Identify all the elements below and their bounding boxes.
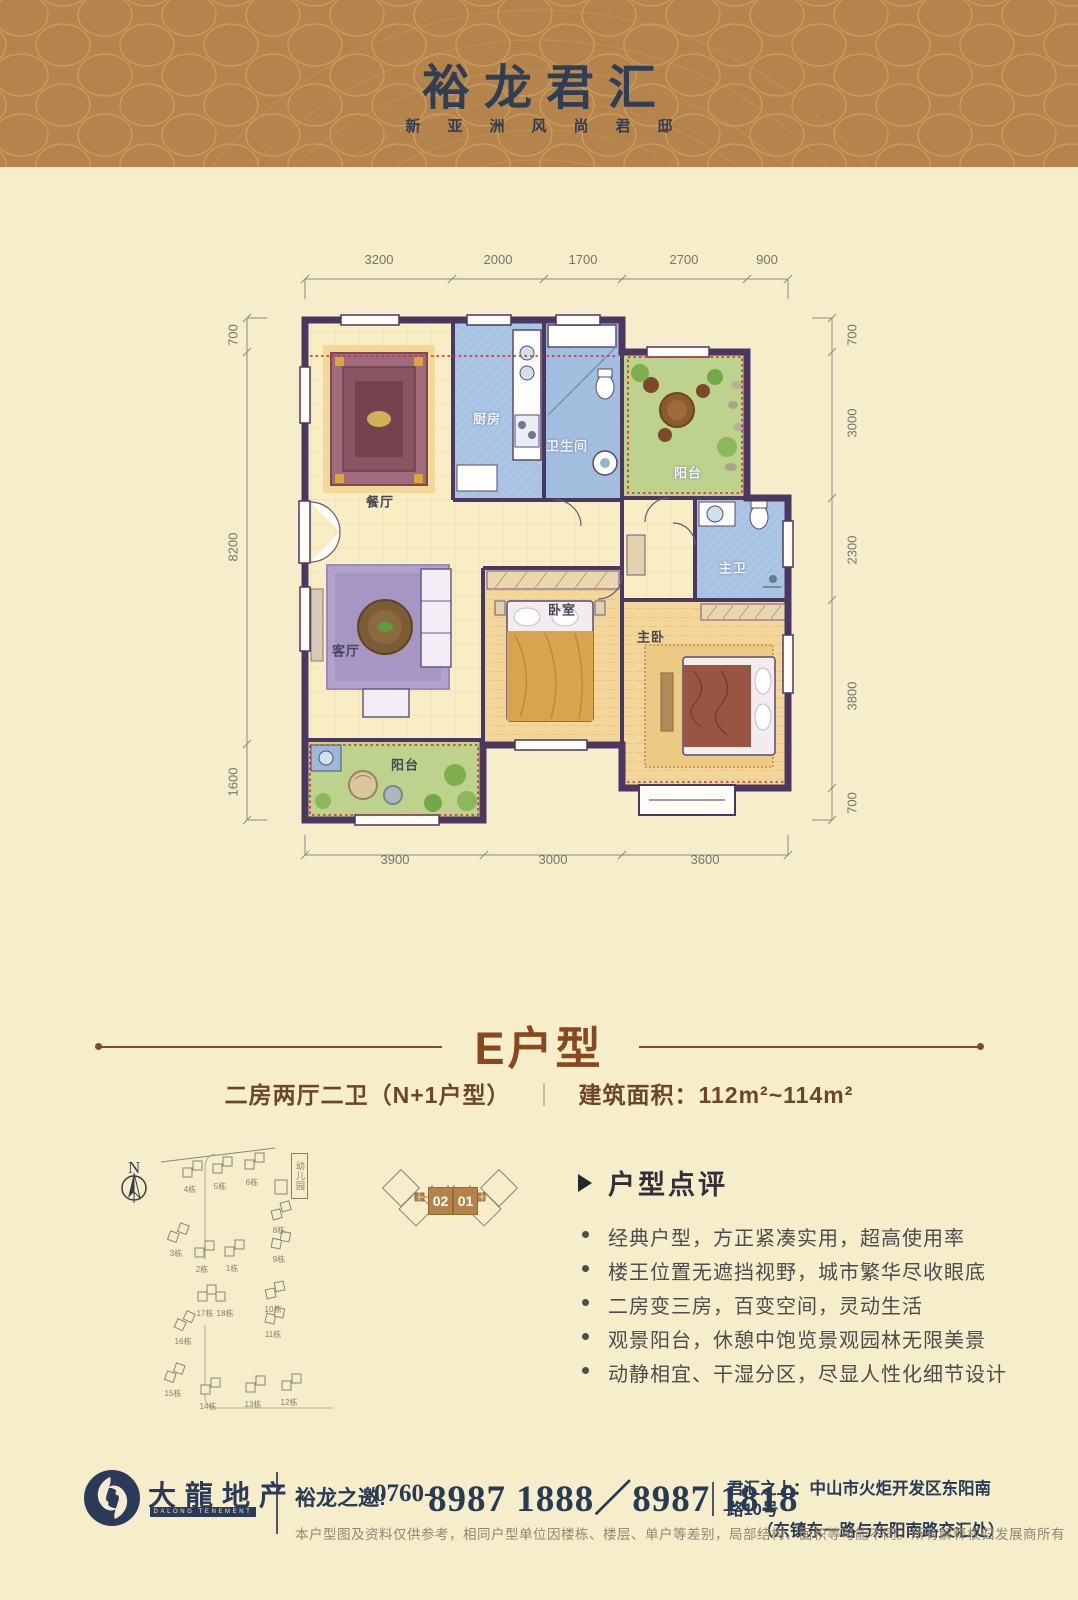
arrow-right-icon [578,1174,592,1192]
bldg-label-13: 13栋 [245,1399,262,1410]
dim-top-2: 2000 [484,252,513,267]
invite-label: 裕龙之邀: [295,1482,386,1512]
room-label-dining: 餐厅 [366,492,394,511]
project-logo-title: 裕龙君汇 [0,48,1078,118]
unit-area: 建筑面积：112m²~114m² [578,1082,853,1108]
site-plan: N 幼儿园 4栋 5栋 6栋 3栋 2栋 1栋 8栋 9栋 17栋 18栋 16… [95,1140,355,1415]
dim-right-3: 2300 [845,536,860,565]
dim-left-2: 8200 [226,533,241,562]
bldg-label-8: 8栋 [273,1225,285,1236]
phone-prefix: 0760- [374,1480,432,1508]
brand-logo-icon [82,1468,142,1528]
comment-item-5: 动静相宜、干湿分区，尽显人性化细节设计 [578,1358,1007,1387]
bldg-label-15: 15栋 [165,1388,182,1399]
address-label: 君汇之上： [727,1480,810,1498]
address-line1: 君汇之上：中山市火炬开发区东阳南路10号 [727,1479,1007,1521]
unit-type-title: E户型 [0,1012,1078,1077]
room-label-master-bedroom: 主卧 [637,627,665,646]
bldg-label-11: 11栋 [265,1329,281,1340]
comments-heading: 户型点评 [578,1163,728,1202]
dim-top-1: 3200 [365,252,394,267]
dim-bottom-1: 3900 [381,852,410,867]
bldg-label-4: 4栋 [184,1184,196,1195]
kindergarten-label: 幼儿园 [291,1153,308,1199]
bldg-label-6: 6栋 [246,1177,258,1188]
dining-furniture [323,345,435,493]
comments-title: 户型点评 [608,1163,728,1202]
footer-divider-2 [712,1482,714,1516]
bldg-label-3: 3栋 [170,1248,182,1259]
dim-bottom-2: 3000 [539,852,568,867]
bldg-label-18: 18栋 [217,1308,234,1319]
unit-type-spec-row: 二房两厅二卫（N+1户型）｜建筑面积：112m²~114m² [0,1076,1078,1110]
dim-right-5: 700 [845,792,860,814]
comment-text-2: 楼王位置无遮挡视野，城市繁华尽收眼底 [608,1262,986,1284]
comment-text-4: 观景阳台，休憩中饱览景观园林无限美景 [608,1330,986,1352]
project-slogan: 新亚洲风尚君邸 [0,115,1078,136]
dim-top-4: 2700 [670,252,699,267]
unit-type-spec: 二房两厅二卫（N+1户型） [225,1082,511,1108]
room-label-kitchen: 厨房 [473,409,501,428]
room-label-balcony-top: 阳台 [674,463,702,482]
bldg-label-16: 16栋 [175,1336,192,1347]
unit-02: 02 [428,1187,453,1215]
north-label: N [128,1158,140,1178]
room-label-balcony-bottom: 阳台 [391,755,419,774]
unit-01: 01 [453,1187,478,1215]
comment-text-1: 经典户型，方正紧凑实用，超高使用率 [608,1228,965,1250]
bldg-label-2: 2栋 [196,1264,208,1275]
comment-item-3: 二房变三房，百变空间，灵动生活 [578,1290,923,1319]
bldg-label-5: 5栋 [214,1181,226,1192]
header-banner: 裕龙君汇 新亚洲风尚君邸 [0,0,1078,167]
footer-divider-1 [276,1472,278,1534]
dim-right-2: 3000 [845,409,860,438]
comment-item-4: 观景阳台，休憩中饱览景观园林无限美景 [578,1324,986,1353]
unit-key-plan: 02 01 [370,1145,530,1245]
bldg-label-17: 17栋 [197,1308,214,1319]
dim-bottom-3: 3600 [691,852,720,867]
brand-name-en: DALONG TENEMENT [150,1507,256,1517]
comment-text-5: 动静相宜、干湿分区，尽显人性化细节设计 [608,1364,1007,1386]
disclaimer-text: 本户型图及资料仅供参考，相同户型单位因楼栋、楼层、单户等差别，局部结构、面积等可… [295,1523,1015,1543]
room-label-master-bath: 主卫 [719,558,747,577]
dim-left-1: 700 [226,324,241,346]
flyer-page: 裕龙君汇 新亚洲风尚君邸 [0,0,1078,1600]
dim-top-5: 900 [756,252,778,267]
comment-item-1: 经典户型，方正紧凑实用，超高使用率 [578,1222,965,1251]
dim-right-1: 700 [845,324,860,346]
room-label-bedroom: 卧室 [548,600,576,619]
comment-item-2: 楼王位置无遮挡视野，城市繁华尽收眼底 [578,1256,986,1285]
dim-left-3: 1600 [226,768,241,797]
room-label-bathroom: 卫生间 [546,436,588,455]
bldg-label-12: 12栋 [281,1397,298,1408]
room-label-living: 客厅 [332,641,360,660]
dim-right-4: 3800 [845,682,860,711]
bldg-label-14: 14栋 [200,1401,217,1412]
floor-plan-drawing [215,235,875,895]
dim-top-3: 1700 [569,252,598,267]
bldg-label-1: 1栋 [226,1263,238,1274]
bldg-label-9: 9栋 [273,1254,285,1265]
bldg-label-10: 10栋 [265,1304,282,1315]
spec-divider: ｜ [532,1082,556,1108]
comment-text-3: 二房变三房，百变空间，灵动生活 [608,1296,923,1318]
